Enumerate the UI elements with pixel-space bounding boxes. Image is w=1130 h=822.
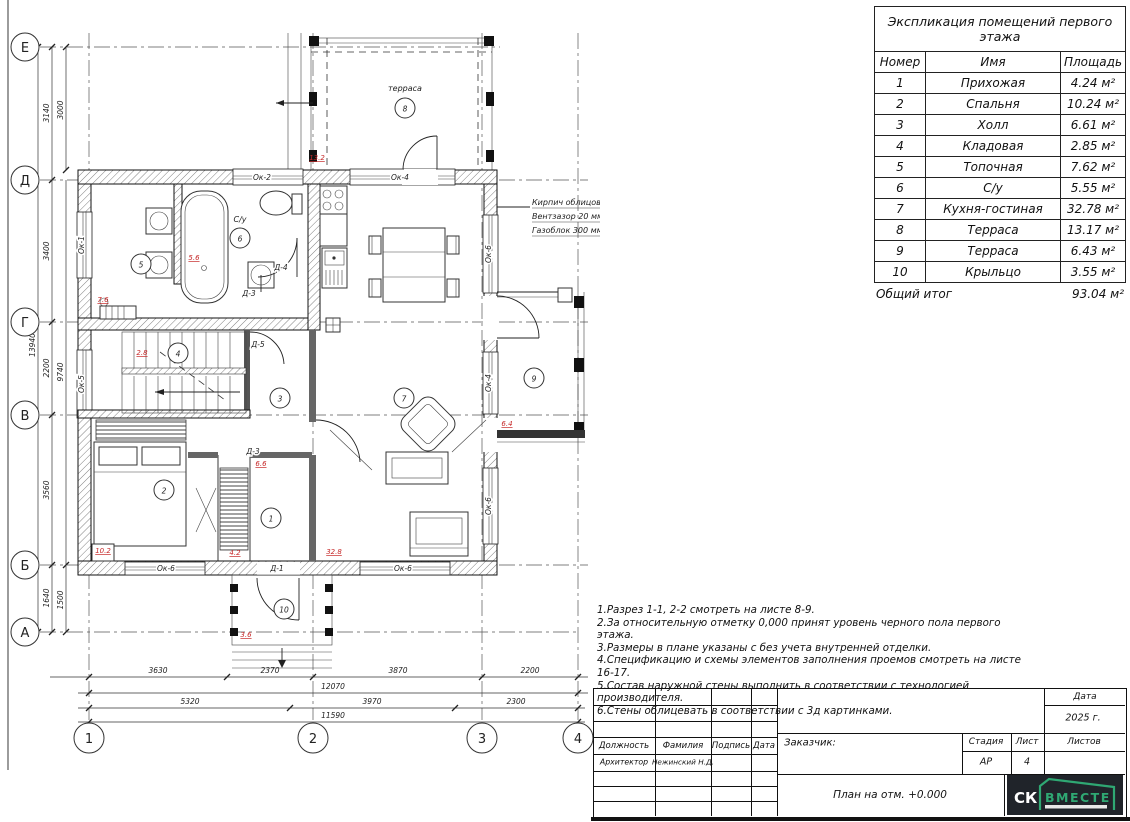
cell-area: 32.78 м²	[1061, 199, 1125, 219]
logo-sk-text: СК	[1014, 789, 1038, 807]
table-row: 8Терраса13.17 м²	[875, 220, 1125, 241]
axis-label: Е	[21, 41, 29, 56]
dim-label: 3400	[42, 241, 51, 260]
wardrobe	[220, 468, 248, 550]
logo-graphic: СК ВМЕСТЕ	[1010, 776, 1120, 814]
cell-name: Терраса	[926, 220, 1061, 240]
floor-plan: терраса 8 13.2	[0, 0, 600, 770]
area-label: 6.6	[255, 460, 267, 468]
cell-area: 3.55 м²	[1061, 262, 1125, 282]
terrace-top-label: терраса	[388, 84, 422, 93]
area-label: 4.2	[229, 549, 241, 557]
room-number: 10	[279, 606, 289, 615]
table-total-row: Общий итог 93.04 м²	[874, 283, 1126, 305]
window-label: Ок-6	[394, 564, 412, 573]
cell-area: 13.17 м²	[1061, 220, 1125, 240]
window-label: Ок-6	[157, 564, 175, 573]
dim-label: 1640	[42, 588, 51, 607]
cell-name: Терраса	[926, 241, 1061, 261]
cell-name: Кладовая	[926, 136, 1061, 156]
axis-label: В	[21, 409, 30, 424]
door-label: Д-4	[273, 263, 288, 272]
cell-name: С/у	[926, 178, 1061, 198]
room-number: 4	[176, 350, 181, 359]
total-label: Общий итог	[876, 287, 952, 301]
dim-label: 3140	[42, 103, 51, 122]
area-label: 13.2	[309, 154, 325, 162]
kitchen-fixtures	[320, 186, 347, 332]
axis-bubbles-bottom: 1 2 3 4	[74, 723, 593, 753]
dim-label: 12070	[321, 682, 345, 691]
architect-name: Нежинский Н.Д.	[652, 758, 714, 767]
sheet-bottom-edge	[591, 817, 1130, 821]
col-header: Номер	[875, 52, 926, 72]
area-label: 5.6	[188, 254, 200, 262]
dim-label: 13940	[28, 333, 37, 357]
cell-number: 7	[875, 199, 926, 219]
dim-label: 3870	[388, 666, 407, 675]
dims-bottom: 3630 2370 3870 2200 12070 5320 3970 2300…	[50, 666, 588, 725]
bath-fixtures	[100, 191, 302, 319]
area-label: 3.6	[240, 631, 252, 639]
dim-label: 2300	[506, 697, 525, 706]
stairs	[122, 332, 246, 413]
date-header: Дата	[1073, 692, 1096, 702]
cell-name: Топочная	[926, 157, 1061, 177]
dim-label: 5320	[180, 697, 199, 706]
terrace-right	[497, 288, 585, 442]
dim-label: 9740	[56, 362, 65, 381]
callout-line: Вентзазор 20 мм	[532, 212, 600, 221]
dim-label: 2370	[260, 666, 279, 675]
wc-label: С/у	[233, 215, 246, 224]
cell-name: Прихожая	[926, 73, 1061, 93]
sheet-value: 4	[1024, 757, 1030, 768]
table-row: 6С/у5.55 м²	[875, 178, 1125, 199]
col-header-signature: Подпись	[712, 741, 750, 751]
terrace-top	[276, 33, 494, 170]
cell-number: 4	[875, 136, 926, 156]
sheet-header: Лист	[1016, 737, 1039, 747]
table-row: 9Терраса6.43 м²	[875, 241, 1125, 262]
door-label: Д-1	[269, 564, 283, 573]
cell-area: 7.62 м²	[1061, 157, 1125, 177]
cell-area: 4.24 м²	[1061, 73, 1125, 93]
window-label: Ок-1	[77, 236, 86, 254]
logo-vmeste-text: ВМЕСТЕ	[1045, 790, 1111, 805]
door-label: Д-3	[241, 289, 256, 298]
door-label: Д-3	[245, 447, 260, 456]
window-label: Ок-6	[484, 245, 493, 263]
table-header-row: Номер Имя Площадь	[875, 52, 1125, 73]
dims-left: 13940 3140 3400 2200 3560 1640 3000 9740…	[28, 44, 69, 635]
col-header: Площадь	[1061, 52, 1125, 72]
callout-line: Газоблок 300 мм	[532, 226, 600, 235]
cell-number: 3	[875, 115, 926, 135]
cell-number: 10	[875, 262, 926, 282]
cell-name: Холл	[926, 115, 1061, 135]
cell-area: 5.55 м²	[1061, 178, 1125, 198]
drawing-sheet: { "plan": { "row_axes": ["Е","Д","Г","В"…	[0, 0, 1130, 822]
note-line: 1.Разрез 1-1, 2-2 смотреть на листе 8-9.	[597, 604, 1037, 617]
room-schedule: Экспликация помещений первого этажа Номе…	[874, 6, 1126, 305]
note-line: 2.За относительную отметку 0,000 принят …	[597, 617, 1037, 642]
area-label: 7.6	[97, 296, 109, 304]
axis-label: 3	[478, 732, 486, 747]
room-number: 1	[269, 515, 274, 524]
area-label: 32.8	[326, 548, 342, 556]
dining-table	[369, 228, 459, 302]
cell-area: 6.61 м²	[1061, 115, 1125, 135]
total-value: 93.04 м²	[1072, 287, 1124, 301]
dim-label: 3970	[362, 697, 381, 706]
table-row: 10Крыльцо3.55 м²	[875, 262, 1125, 282]
sheets-header: Листов	[1067, 737, 1101, 747]
table-row: 2Спальня10.24 м²	[875, 94, 1125, 115]
table-row: 4Кладовая2.85 м²	[875, 136, 1125, 157]
porch	[230, 575, 333, 668]
table-row: 3Холл6.61 м²	[875, 115, 1125, 136]
dim-label: 2200	[520, 666, 539, 675]
axis-label: А	[21, 626, 30, 641]
window-label: Ок-4	[391, 173, 409, 182]
cell-number: 1	[875, 73, 926, 93]
room-number: 3	[278, 395, 283, 404]
cell-name: Крыльцо	[926, 262, 1061, 282]
cell-area: 10.24 м²	[1061, 94, 1125, 114]
note-line: 4.Спецификацию и схемы элементов заполне…	[597, 654, 1037, 679]
axis-label: Г	[21, 316, 29, 331]
note-line: 3.Размеры в плане указаны с без учета вн…	[597, 642, 1037, 655]
dim-label: 1500	[56, 590, 65, 609]
callout-line: Кирпич облицовочный 120 мм	[532, 198, 600, 207]
axis-label: Д	[20, 174, 30, 189]
architect-role: Архитектор	[600, 758, 648, 767]
drawing-title: План на отм. +0.000	[833, 789, 947, 801]
col-header-surname: Фамилия	[663, 741, 704, 751]
year-value: 2025 г.	[1065, 713, 1100, 724]
room-number: 5	[139, 261, 144, 270]
cell-number: 6	[875, 178, 926, 198]
room-number: 8	[403, 105, 408, 114]
dim-label: 2200	[42, 358, 51, 377]
stage-header: Стадия	[969, 737, 1004, 747]
customer-label: Заказчик:	[784, 738, 836, 749]
company-logo: СК ВМЕСТЕ	[1007, 775, 1123, 815]
table-row: 7Кухня-гостиная32.78 м²	[875, 199, 1125, 220]
table-row: 5Топочная7.62 м²	[875, 157, 1125, 178]
wall-callout: Кирпич облицовочный 120 мм Вентзазор 20 …	[497, 198, 600, 236]
cell-area: 6.43 м²	[1061, 241, 1125, 261]
dim-label: 3630	[148, 666, 167, 675]
logo-tagline-strip	[1045, 805, 1107, 809]
stage-value: АР	[980, 757, 992, 768]
cell-area: 2.85 м²	[1061, 136, 1125, 156]
cell-number: 9	[875, 241, 926, 261]
dim-label: 3560	[42, 480, 51, 499]
axis-label: 1	[85, 732, 93, 747]
col-header-role: Должность	[599, 741, 649, 751]
cell-name: Спальня	[926, 94, 1061, 114]
room-number: 9	[532, 375, 537, 384]
area-label: 10.2	[95, 547, 111, 555]
col-header: Имя	[926, 52, 1061, 72]
window-label: Ок-2	[253, 173, 271, 182]
window-label: Ок-6	[484, 497, 493, 515]
col-header-date: Дата	[753, 741, 775, 751]
table-row: 1Прихожая4.24 м²	[875, 73, 1125, 94]
window-label: Ок-4	[484, 374, 493, 392]
window-label: Ок-5	[77, 375, 86, 393]
door-label: Д-5	[250, 340, 265, 349]
room-number: 7	[402, 395, 407, 404]
cell-number: 2	[875, 94, 926, 114]
room-number: 2	[162, 487, 167, 496]
axis-label: 4	[574, 732, 582, 747]
area-label: 2.8	[136, 349, 148, 357]
cell-number: 8	[875, 220, 926, 240]
room-schedule-title: Экспликация помещений первого этажа	[875, 7, 1125, 52]
dim-label: 11590	[321, 711, 345, 720]
room-number: 6	[238, 235, 243, 244]
area-label: 6.4	[501, 420, 512, 428]
dim-label: 3000	[56, 100, 65, 119]
cell-name: Кухня-гостиная	[926, 199, 1061, 219]
axis-label: Б	[21, 559, 30, 574]
axis-label: 2	[309, 732, 317, 747]
cell-number: 5	[875, 157, 926, 177]
